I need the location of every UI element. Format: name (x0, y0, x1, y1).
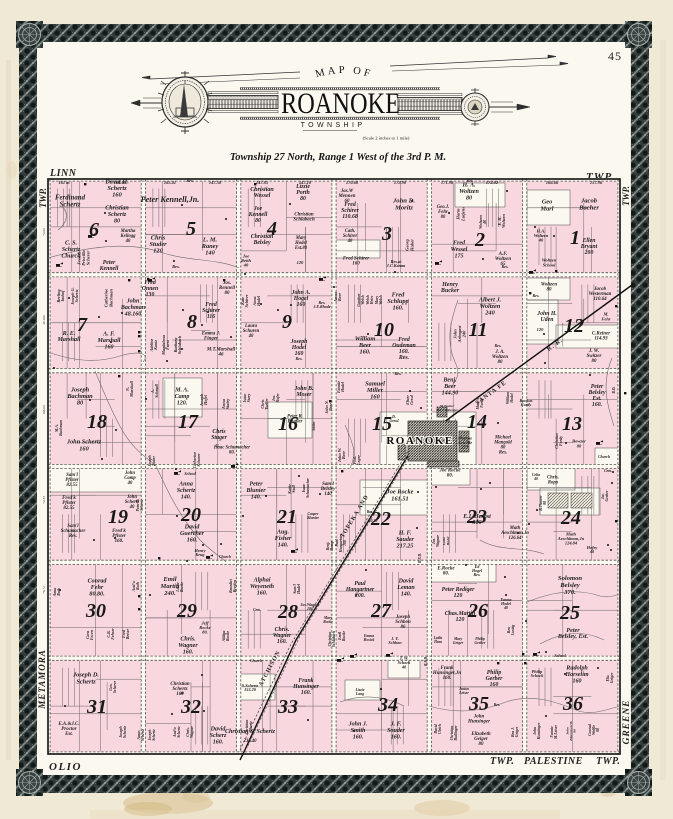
svg-text:31: 31 (86, 696, 107, 718)
svg-text:Peter R.Blunier: Peter R.Blunier (287, 415, 303, 425)
svg-text:JosephSchertz: JosephSchertz (118, 725, 127, 738)
svg-text:12: 12 (564, 315, 584, 337)
svg-text:MaryHodelEst.80: MaryHodelEst.80 (294, 236, 308, 251)
svg-text:AnnaStaley: AnnaStaley (221, 398, 230, 410)
svg-text:FannieHodel: FannieHodel (336, 381, 345, 393)
svg-text:R.D.: R.D. (612, 386, 616, 393)
svg-text:LydiaHodel: LydiaHodel (442, 537, 450, 547)
svg-text:C.Reiner114.93: C.Reiner114.93 (592, 331, 610, 341)
svg-text:EmilRocke: EmilRocke (337, 631, 346, 641)
svg-text:Cem.: Cem. (604, 469, 612, 473)
svg-text:HenryKrug: HenryKrug (193, 548, 205, 557)
svg-text:2: 2 (474, 229, 485, 251)
svg-text:ChristianSchertz: ChristianSchertz (245, 720, 253, 735)
svg-text:R.F.D.: R.F.D. (418, 553, 422, 563)
svg-text:WilliamHodel: WilliamHodel (506, 392, 514, 404)
svg-text:1: 1 (570, 227, 580, 249)
svg-text:9: 9 (282, 311, 292, 333)
svg-text:School: School (554, 653, 566, 658)
svg-text:M. A.Camp120.: M. A.Camp120. (174, 388, 189, 407)
svg-text:Peter D.Schertz: Peter D.Schertz (136, 499, 144, 512)
svg-text:74.60: 74.60 (42, 228, 46, 236)
svg-text:BackusFordy: BackusFordy (519, 398, 533, 407)
svg-text:Benj.Beer144.90: Benj.Beer144.90 (442, 378, 459, 397)
svg-text:165.41: 165.41 (164, 180, 176, 185)
svg-text:ChristianHullinger: ChristianHullinger (450, 725, 458, 742)
svg-text:JosephZotter: JosephZotter (147, 454, 156, 467)
svg-text:HarmLutjens: HarmLutjens (456, 207, 466, 222)
svg-text:PALESTINE: PALESTINE (524, 756, 583, 767)
svg-text:ChristianSchlabach: ChristianSchlabach (293, 212, 315, 222)
svg-text:34: 34 (377, 694, 398, 716)
svg-text:CasperBlunier: CasperBlunier (306, 512, 319, 520)
svg-text:John D.Moritz: John D.Moritz (392, 198, 415, 212)
svg-text:233.40: 233.40 (243, 739, 258, 744)
svg-text:48.160: 48.160 (42, 315, 46, 325)
svg-text:MaryRocke: MaryRocke (323, 616, 333, 624)
svg-text:Fred &PriscillaScherer: Fred &PriscillaScherer (76, 250, 90, 266)
svg-text:5: 5 (186, 218, 196, 240)
svg-text:LizzieLang: LizzieLang (355, 688, 365, 696)
svg-text:11: 11 (469, 319, 488, 341)
svg-text:TWP.: TWP. (38, 188, 48, 208)
svg-text:14: 14 (467, 411, 487, 433)
svg-text:171.96: 171.96 (441, 180, 454, 185)
svg-text:7: 7 (77, 314, 88, 336)
svg-text:School: School (184, 471, 196, 476)
svg-text:ChrisToeller: ChrisToeller (260, 398, 269, 410)
svg-text:32: 32 (180, 696, 201, 718)
svg-text:Sam'lPfister82.55: Sam'lPfister82.55 (65, 473, 79, 488)
svg-text:And'wRoth: And'wRoth (131, 580, 140, 592)
svg-text:29: 29 (176, 600, 197, 622)
svg-text:BarbaraSchlabach: BarbaraSchlabach (173, 335, 182, 354)
svg-text:BerlingImhof: BerlingImhof (56, 289, 65, 304)
svg-text:Sam'lHodel: Sam'lHodel (292, 583, 301, 595)
svg-text:Phil.Leger: Phil.Leger (352, 455, 361, 466)
svg-text:13: 13 (562, 413, 582, 435)
svg-text:WelshHeirs: WelshHeirs (366, 295, 374, 305)
svg-text:147.85: 147.85 (256, 180, 269, 185)
svg-text:PhilipSchock: PhilipSchock (531, 669, 545, 678)
svg-text:TWP.: TWP. (621, 186, 631, 206)
svg-text:11: 11 (215, 443, 219, 448)
svg-text:LizzieRocke: LizzieRocke (175, 582, 184, 593)
svg-text:161 m: 161 m (58, 180, 70, 185)
svg-text:166.66: 166.66 (546, 180, 559, 185)
svg-text:Res.: Res. (367, 510, 374, 514)
svg-text:Mary A.Fordy: Mary A.Fordy (476, 397, 484, 411)
svg-text:GeoMarl: GeoMarl (539, 199, 553, 213)
svg-text:John B.Moser: John B.Moser (293, 386, 313, 398)
svg-text:LydiaHam: LydiaHam (433, 636, 443, 644)
svg-text:AnnaRoth: AnnaRoth (53, 588, 61, 598)
svg-text:ROANOKE: ROANOKE (386, 435, 453, 447)
svg-text:MaryWelsh: MaryWelsh (375, 295, 383, 305)
svg-text:IsaacStory: IsaacStory (242, 393, 251, 403)
svg-text:Cem.: Cem. (253, 608, 261, 612)
svg-text:PhilipGerber: PhilipGerber (475, 637, 486, 645)
svg-text:CatherineBachman: CatherineBachman (104, 289, 114, 308)
svg-text:AmosSchertz: AmosSchertz (136, 728, 145, 741)
svg-text:AdelineKuntz: AdelineKuntz (149, 338, 158, 352)
svg-text:CatherineSchurer: CatherineSchurer (192, 452, 201, 469)
svg-text:147.18: 147.18 (299, 180, 312, 185)
svg-text:76.72: 76.72 (42, 586, 46, 594)
svg-text:Res.: Res. (172, 264, 180, 269)
svg-text:LINN: LINN (49, 168, 77, 179)
svg-text:18: 18 (87, 411, 107, 433)
svg-text:Chris.Ropp: Chris.Ropp (547, 476, 559, 486)
svg-text:157.96: 157.96 (590, 180, 603, 185)
svg-text:3: 3 (381, 223, 392, 245)
svg-text:TOWNSHIP: TOWNSHIP (301, 122, 366, 129)
svg-text:25: 25 (559, 602, 580, 624)
svg-text:166.60: 166.60 (42, 405, 46, 415)
svg-text:28: 28 (277, 601, 298, 623)
svg-text:Church: Church (598, 455, 610, 459)
svg-text:Res.: Res. (186, 178, 193, 183)
svg-text:36: 36 (562, 693, 583, 715)
svg-text:33: 33 (277, 696, 298, 718)
svg-text:120: 120 (297, 260, 304, 265)
svg-text:Res.: Res. (296, 356, 303, 361)
svg-text:EmmaHosick: EmmaHosick (363, 634, 375, 642)
svg-text:10: 10 (374, 319, 394, 341)
svg-text:Res.: Res. (502, 264, 509, 269)
svg-text:74.33: 74.33 (42, 496, 46, 504)
svg-text:Church: Church (250, 659, 262, 663)
svg-text:Benj.Ramp: Benj.Ramp (325, 541, 334, 551)
svg-text:ElizerGreul: ElizerGreul (405, 394, 414, 406)
svg-text:GREENE: GREENE (622, 699, 632, 744)
svg-text:Sittler: Sittler (312, 421, 316, 431)
svg-text:19: 19 (108, 506, 128, 528)
svg-text:172.02: 172.02 (486, 180, 499, 185)
svg-text:ChristianBelsley: ChristianBelsley (251, 234, 274, 246)
svg-text:Res.: Res. (467, 178, 474, 183)
svg-text:21: 21 (276, 506, 297, 528)
svg-text:BenedictBreylen: BenedictBreylen (229, 578, 237, 594)
svg-text:30: 30 (85, 600, 106, 622)
svg-text:Peter Kennell,Jn.: Peter Kennell,Jn. (141, 195, 200, 204)
svg-text:8: 8 (187, 311, 197, 333)
svg-text:ChrisStuger: ChrisStuger (211, 429, 228, 441)
svg-text:24: 24 (560, 507, 581, 529)
svg-text:TWP.: TWP. (490, 756, 514, 767)
svg-text:17: 17 (178, 411, 199, 433)
svg-text:(Scale 2 inches to 1 mile): (Scale 2 inches to 1 mile) (363, 136, 410, 141)
svg-text:Res.: Res. (533, 293, 540, 298)
svg-text:DavidUlrich: DavidUlrich (434, 724, 442, 735)
svg-text:120: 120 (537, 327, 544, 332)
svg-text:ChristianSchlabach: ChristianSchlabach (328, 631, 336, 647)
svg-text:Township 27 North, Range 1 Wes: Township 27 North, Range 1 West of the 3… (230, 152, 446, 163)
svg-text:And'wSchertz: And'wSchertz (173, 726, 181, 738)
svg-text:172.90: 172.90 (394, 180, 407, 185)
svg-text:HenryBucker: HenryBucker (440, 282, 460, 294)
svg-text:TWP.: TWP. (596, 756, 620, 767)
svg-text:45: 45 (608, 49, 622, 63)
svg-text:AldigaRocke: AldigaRocke (221, 631, 230, 643)
svg-text:Joseph D.Schertz: Joseph D.Schertz (72, 672, 99, 686)
svg-text:Joseph G.Schertz: Joseph G.Schertz (70, 287, 79, 305)
svg-text:Fred'kPfister82.55: Fred'kPfister82.55 (62, 496, 76, 511)
svg-text:KattieStoll: KattieStoll (287, 484, 296, 495)
svg-text:15: 15 (372, 413, 392, 435)
svg-text:R.F.D.: R.F.D. (424, 656, 428, 666)
svg-text:20.50: 20.50 (368, 518, 378, 523)
svg-text:170.68: 170.68 (346, 180, 359, 185)
svg-text:GeorgHuber: GeorgHuber (405, 239, 415, 252)
svg-text:27: 27 (370, 600, 392, 622)
svg-text:166.60: 166.60 (114, 180, 127, 185)
svg-text:JosephSchertz: JosephSchertz (148, 729, 156, 741)
svg-text:147.58: 147.58 (209, 180, 222, 185)
svg-text:Res.: Res. (495, 343, 502, 348)
svg-text:Ben J.Geiger: Ben J.Geiger (511, 726, 519, 738)
svg-text:MaryGeiger: MaryGeiger (453, 637, 464, 645)
svg-text:ROANOKE: ROANOKE (281, 87, 400, 120)
svg-text:WoltzenSchool: WoltzenSchool (542, 258, 557, 268)
svg-text:AnnaBeer: AnnaBeer (333, 291, 342, 303)
svg-text:OLIO: OLIO (49, 761, 82, 773)
svg-text:JacobBacher: JacobBacher (578, 198, 599, 212)
svg-text:AnnaHodel: AnnaHodel (252, 295, 261, 307)
svg-text:Res.: Res. (395, 371, 402, 376)
svg-text:35: 35 (468, 693, 489, 715)
svg-text:34.74: 34.74 (42, 696, 46, 704)
svg-text:6: 6 (89, 219, 99, 241)
svg-text:JustusLeiser: JustusLeiser (458, 687, 469, 695)
svg-text:FannieM.Leiser: FannieM.Leiser (550, 725, 558, 740)
svg-text:Chris.Wagner: Chris.Wagner (186, 725, 194, 738)
svg-text:JosephHofel: JosephHofel (199, 393, 208, 407)
svg-text:Church: Church (219, 555, 231, 559)
svg-text:Res.: Res. (494, 703, 501, 707)
svg-text:Emma J.Finger: Emma J.Finger (201, 331, 220, 341)
svg-text:20: 20 (180, 504, 201, 526)
